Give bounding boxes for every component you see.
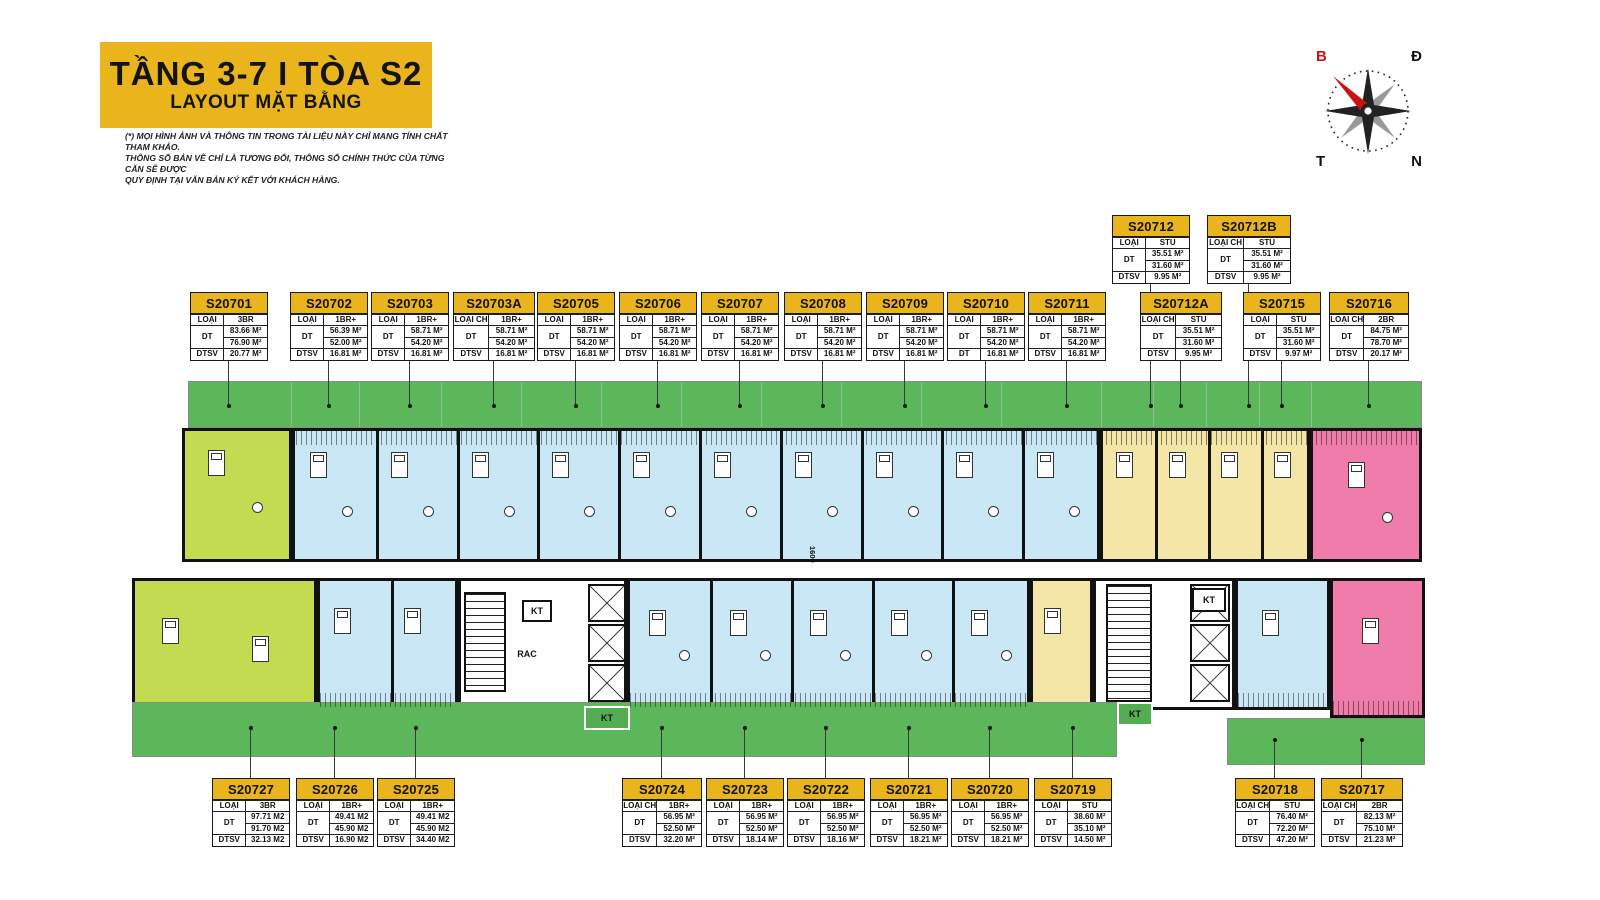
bed-icon xyxy=(795,452,812,478)
unit-card-S20715[interactable]: S20715 LOẠI CH STU DT 35.51 M² 31.60 M² … xyxy=(1243,292,1321,361)
field-label-dtsv: DTSV xyxy=(871,834,904,846)
unit-divider-wall xyxy=(699,431,702,559)
unit-area-net: 31.60 M² xyxy=(1277,337,1320,349)
unit-type: 1BR+ xyxy=(405,314,448,326)
field-label-dtsv: DTSV xyxy=(702,348,735,360)
unit-area-dtsv: 16.81 M² xyxy=(571,348,614,360)
unit-divider-wall xyxy=(681,382,682,427)
leader-dot xyxy=(327,404,331,408)
bed-icon xyxy=(714,452,731,478)
field-label-dt: DT xyxy=(538,325,571,348)
field-label-dt: DT xyxy=(867,325,900,348)
leader-dot xyxy=(1071,726,1075,730)
unit-divider-wall xyxy=(861,431,864,559)
unit-area-gross: 35.51 M² xyxy=(1176,325,1221,337)
unit-code: S20703A xyxy=(454,293,534,314)
unit-area-dtsv: 16.81 M² xyxy=(981,348,1024,360)
unit-info-table: LOẠI CH 1BR+ DT 56.95 M² 52.50 M² DTSV 1… xyxy=(952,800,1028,846)
elevator-icon xyxy=(588,664,626,702)
leader-line xyxy=(415,728,416,778)
floorplan-page: TẦNG 3-7 I TÒA S2 LAYOUT MẶT BẰNG (*) MỌ… xyxy=(0,0,1600,900)
field-label-loai-ch: LOẠI CH xyxy=(297,800,330,812)
leader-line xyxy=(409,360,410,406)
leader-dot xyxy=(1280,404,1284,408)
unit-area-dtsv: 47.20 M² xyxy=(1270,834,1314,846)
table-icon xyxy=(908,506,919,517)
leader-line xyxy=(908,728,909,778)
unit-block-1br-top xyxy=(292,428,1100,562)
unit-card-S20703A[interactable]: S20703A LOẠI CH 1BR+ DT 58.71 M² 54.20 M… xyxy=(453,292,535,361)
unit-area-gross: 58.71 M² xyxy=(1062,325,1105,337)
unit-area-net: 76.90 M² xyxy=(224,337,267,349)
unit-area-dtsv: 9.97 M² xyxy=(1277,348,1320,360)
unit-area-gross: 49.41 M2 xyxy=(330,811,373,823)
bed-icon xyxy=(252,636,269,662)
unit-type: 1BR+ xyxy=(1062,314,1105,326)
unit-card-S20712[interactable]: S20712 LOẠI CH STU DT 35.51 M² 31.60 M² … xyxy=(1112,215,1190,284)
landscape-strip-bottom-right xyxy=(1227,718,1425,765)
leader-line xyxy=(989,728,990,778)
unit-type: 1BR+ xyxy=(735,314,778,326)
unit-area-dtsv: 16.81 M² xyxy=(818,348,861,360)
unit-block-1br-bottom-left xyxy=(317,578,458,710)
unit-area-dtsv: 32.20 M² xyxy=(657,834,701,846)
unit-code: S20726 xyxy=(297,779,373,800)
staircase-icon xyxy=(464,592,506,692)
unit-area-dtsv: 16.81 M² xyxy=(1062,348,1105,360)
elevator-icon xyxy=(1190,664,1230,702)
unit-card-S20727[interactable]: S20727 LOẠI CH 3BR DT 97.71 M2 91.70 M2 … xyxy=(212,778,290,847)
unit-info-table: LOẠI CH 1BR+ DT 58.71 M² 54.20 M² DTSV 1… xyxy=(372,314,448,360)
unit-info-table: LOẠI CH 1BR+ DT 49.41 M2 45.90 M2 DTSV 3… xyxy=(378,800,454,846)
bed-icon xyxy=(1037,452,1054,478)
leader-dot xyxy=(907,726,911,730)
unit-divider-wall xyxy=(1206,382,1207,427)
unit-card-S20712B[interactable]: S20712B LOẠI CH STU DT 35.51 M² 31.60 M²… xyxy=(1207,215,1291,284)
unit-info-table: LOẠI CH 1BR+ DT 58.71 M² 54.20 M² DTSV 1… xyxy=(538,314,614,360)
unit-type: STU xyxy=(1068,800,1111,812)
leader-line xyxy=(744,728,745,778)
leader-line xyxy=(657,360,658,406)
field-label-loai-ch: LOẠI CH xyxy=(1330,314,1364,326)
unit-info-table: LOẠI CH STU DT 76.40 M² 72.20 M² DTSV 47… xyxy=(1236,800,1314,846)
bed-icon xyxy=(956,452,973,478)
leader-dot xyxy=(408,404,412,408)
unit-divider-wall xyxy=(872,581,875,707)
unit-card-S20720[interactable]: S20720 LOẠI CH 1BR+ DT 56.95 M² 52.50 M²… xyxy=(951,778,1029,847)
unit-info-table: LOẠI CH 2BR DT 84.75 M² 78.70 M² DTSV 20… xyxy=(1330,314,1408,360)
disclaimer-line: THÔNG SỐ BẢN VẼ CHỈ LÀ TƯƠNG ĐỐI, THÔNG … xyxy=(125,153,465,175)
table-icon xyxy=(342,506,353,517)
unit-block-stu-top xyxy=(1100,428,1310,562)
field-label-dtsv: DTSV xyxy=(454,348,489,360)
unit-area-net: 54.20 M² xyxy=(735,337,778,349)
field-label-dt: DT xyxy=(297,811,330,834)
field-label-loai-ch: LOẠI CH xyxy=(191,314,224,326)
bed-icon xyxy=(310,452,327,478)
table-icon xyxy=(252,502,263,513)
field-label-dt: DT xyxy=(707,811,740,834)
bed-icon xyxy=(404,608,421,634)
staircase-icon xyxy=(1106,584,1152,702)
field-label-dt: DT xyxy=(702,325,735,348)
unit-area-gross: 58.71 M² xyxy=(818,325,861,337)
unit-area-net: 31.60 M² xyxy=(1176,337,1221,349)
field-label-dt: DT xyxy=(1322,811,1357,834)
unit-card-S20723[interactable]: S20723 LOẠI CH 1BR+ DT 56.95 M² 52.50 M²… xyxy=(706,778,784,847)
unit-type: 1BR+ xyxy=(818,314,861,326)
table-icon xyxy=(1382,512,1393,523)
corridor-dimension-label: 1600 xyxy=(808,546,817,563)
field-label-dt: DT xyxy=(1113,248,1146,271)
unit-code: S20718 xyxy=(1236,779,1314,800)
field-label-loai-ch: LOẠI CH xyxy=(291,314,324,326)
unit-type: 1BR+ xyxy=(330,800,373,812)
unit-info-table: LOẠI CH STU DT 38.60 M² 35.10 M² DTSV 14… xyxy=(1035,800,1111,846)
unit-card-S20712A[interactable]: S20712A LOẠI CH STU DT 35.51 M² 31.60 M²… xyxy=(1140,292,1222,361)
disclaimer-text: (*) MỌI HÌNH ẢNH VÀ THÔNG TIN TRONG TÀI … xyxy=(125,131,465,186)
unit-divider-wall xyxy=(1153,382,1154,427)
field-label-dt: DT xyxy=(788,811,821,834)
field-label-dt: DT xyxy=(952,811,985,834)
unit-area-dtsv: 18.21 M² xyxy=(904,834,947,846)
unit-code: S20701 xyxy=(191,293,267,314)
compass-south-label: N xyxy=(1411,153,1422,170)
unit-card-S20708[interactable]: S20708 LOẠI CH 1BR+ DT 58.71 M² 54.20 M²… xyxy=(784,292,862,361)
field-label-loai-ch: LOẠI CH xyxy=(454,314,489,326)
field-label-loai-ch: LOẠI CH xyxy=(707,800,740,812)
field-label-dtsv: DTSV xyxy=(191,348,224,360)
leader-line xyxy=(825,728,826,778)
unit-type: 1BR+ xyxy=(324,314,367,326)
leader-line xyxy=(739,360,740,406)
leader-dot xyxy=(656,404,660,408)
unit-type: 1BR+ xyxy=(904,800,947,812)
kt-room-label-green: KT xyxy=(584,706,630,730)
leader-dot xyxy=(249,726,253,730)
unit-divider-wall xyxy=(761,382,762,427)
unit-area-gross: 58.71 M² xyxy=(571,325,614,337)
unit-divider-wall xyxy=(457,431,460,559)
leader-dot xyxy=(743,726,747,730)
bed-icon xyxy=(334,608,351,634)
field-label-dt: DT xyxy=(948,325,981,348)
unit-info-table: LOẠI CH 1BR+ DT 58.71 M² 54.20 M² DTSV 1… xyxy=(1029,314,1105,360)
unit-info-table: LOẠI CH 1BR+ DT 58.71 M² 54.20 M² DT 16.… xyxy=(948,314,1024,360)
field-label-dtsv: DTSV xyxy=(1208,271,1244,283)
unit-card-S20725[interactable]: S20725 LOẠI CH 1BR+ DT 49.41 M2 45.90 M2… xyxy=(377,778,455,847)
bed-icon xyxy=(730,610,747,636)
title-box: TẦNG 3-7 I TÒA S2 LAYOUT MẶT BẰNG xyxy=(100,42,432,128)
unit-area-gross: 56.95 M² xyxy=(740,811,783,823)
bed-icon xyxy=(1348,462,1365,488)
elevator-icon xyxy=(588,624,626,662)
field-label-loai-ch: LOẠI CH xyxy=(1322,800,1357,812)
unit-code: S20723 xyxy=(707,779,783,800)
field-label-dtsv: DTSV xyxy=(1244,348,1277,360)
compass-north-label: B xyxy=(1316,48,1327,65)
unit-card-S20701[interactable]: S20701 LOẠI CH 3BR DT 83.66 M² 76.90 M² … xyxy=(190,292,268,361)
field-label-loai-ch: LOẠI CH xyxy=(378,800,411,812)
field-label-dt: DT xyxy=(1029,325,1062,348)
leader-dot xyxy=(824,726,828,730)
unit-divider-wall xyxy=(359,382,360,427)
unit-card-S20711[interactable]: S20711 LOẠI CH 1BR+ DT 58.71 M² 54.20 M²… xyxy=(1028,292,1106,361)
unit-code: S20720 xyxy=(952,779,1028,800)
field-label-dt: DT xyxy=(1330,325,1364,348)
leader-line xyxy=(1274,740,1275,778)
unit-code: S20707 xyxy=(702,293,778,314)
table-icon xyxy=(760,650,771,661)
unit-type: STU xyxy=(1277,314,1320,326)
disclaimer-line: (*) MỌI HÌNH ẢNH VÀ THÔNG TIN TRONG TÀI … xyxy=(125,131,465,153)
unit-area-dtsv: 9.95 M² xyxy=(1176,348,1221,360)
unit-code: S20712 xyxy=(1113,216,1189,237)
table-icon xyxy=(921,650,932,661)
unit-card-S20703[interactable]: S20703 LOẠI CH 1BR+ DT 58.71 M² 54.20 M²… xyxy=(371,292,449,361)
unit-card-S20722[interactable]: S20722 LOẠI CH 1BR+ DT 56.95 M² 52.50 M²… xyxy=(787,778,865,847)
leader-dot xyxy=(1273,738,1277,742)
unit-area-net: 54.20 M² xyxy=(818,337,861,349)
unit-type: 1BR+ xyxy=(653,314,696,326)
unit-card-S20710[interactable]: S20710 LOẠI CH 1BR+ DT 58.71 M² 54.20 M²… xyxy=(947,292,1025,361)
unit-area-gross: 58.71 M² xyxy=(900,325,943,337)
unit-area-gross: 58.71 M² xyxy=(653,325,696,337)
unit-card-S20726[interactable]: S20726 LOẠI CH 1BR+ DT 49.41 M2 45.90 M2… xyxy=(296,778,374,847)
bed-icon xyxy=(891,610,908,636)
unit-area-dtsv: 9.95 M² xyxy=(1244,271,1290,283)
unit-area-net: 78.70 M² xyxy=(1364,337,1408,349)
bed-icon xyxy=(1274,452,1291,478)
unit-type: 1BR+ xyxy=(981,314,1024,326)
unit-area-net: 54.20 M² xyxy=(1062,337,1105,349)
unit-card-S20702[interactable]: S20702 LOẠI CH 1BR+ DT 56.39 M² 52.00 M²… xyxy=(290,292,368,361)
unit-area-gross: 49.41 M2 xyxy=(411,811,454,823)
leader-line xyxy=(1180,360,1181,406)
unit-area-dtsv: 16.81 M² xyxy=(735,348,778,360)
unit-area-dtsv: 34.40 M2 xyxy=(411,834,454,846)
unit-area-net: 91.70 M2 xyxy=(246,823,289,835)
field-label-dtsv: DTSV xyxy=(378,834,411,846)
unit-card-S20716[interactable]: S20716 LOẠI CH 2BR DT 84.75 M² 78.70 M² … xyxy=(1329,292,1409,361)
unit-code: S20706 xyxy=(620,293,696,314)
unit-type: 1BR+ xyxy=(900,314,943,326)
unit-divider-wall xyxy=(941,431,944,559)
leader-dot xyxy=(660,726,664,730)
unit-card-S20707[interactable]: S20707 LOẠI CH 1BR+ DT 58.71 M² 54.20 M²… xyxy=(701,292,779,361)
leader-dot xyxy=(821,404,825,408)
unit-card-S20717[interactable]: S20717 LOẠI CH 2BR DT 82.13 M² 75.10 M² … xyxy=(1321,778,1403,847)
bed-icon xyxy=(162,618,179,644)
unit-divider-wall xyxy=(601,382,602,427)
field-label-dtsv: DTSV xyxy=(1322,834,1357,846)
unit-block-stu-bottom xyxy=(1030,578,1093,710)
unit-area-gross: 56.95 M² xyxy=(904,811,947,823)
leader-line xyxy=(1066,360,1067,406)
leader-line xyxy=(493,360,494,406)
field-label-dt: DT xyxy=(191,325,224,348)
unit-divider-wall xyxy=(1101,382,1102,427)
unit-area-gross: 35.51 M² xyxy=(1244,248,1290,260)
table-icon xyxy=(504,506,515,517)
balcony-hatch xyxy=(296,431,1418,445)
bed-icon xyxy=(1221,452,1238,478)
field-label-loai-ch: LOẠI CH xyxy=(1113,237,1146,249)
leader-dot xyxy=(1360,738,1364,742)
table-icon xyxy=(746,506,757,517)
disclaimer-line: QUY ĐỊNH TẠI VĂN BẢN KÝ KẾT VỚI KHÁCH HÀ… xyxy=(125,175,465,186)
bed-icon xyxy=(1044,608,1061,634)
bed-icon xyxy=(633,452,650,478)
unit-area-gross: 35.51 M² xyxy=(1277,325,1320,337)
unit-area-dtsv: 20.17 M² xyxy=(1364,348,1408,360)
unit-type: STU xyxy=(1146,237,1189,249)
leader-dot xyxy=(1179,404,1183,408)
unit-area-gross: 58.71 M² xyxy=(405,325,448,337)
unit-area-gross: 84.75 M² xyxy=(1364,325,1408,337)
field-label-loai-ch: LOẠI CH xyxy=(952,800,985,812)
field-label-dtsv: DTSV xyxy=(291,348,324,360)
leader-line xyxy=(661,728,662,778)
leader-line xyxy=(328,360,329,406)
leader-dot xyxy=(333,726,337,730)
unit-area-gross: 35.51 M² xyxy=(1146,248,1189,260)
leader-line xyxy=(250,728,251,778)
unit-divider-wall xyxy=(1155,431,1158,559)
field-label-dtsv: DTSV xyxy=(707,834,740,846)
unit-area-net: 54.20 M² xyxy=(571,337,614,349)
unit-divider-wall xyxy=(841,382,842,427)
field-label-dtsv: DT xyxy=(948,348,981,360)
unit-block-3br-bottom xyxy=(132,578,317,710)
leader-dot xyxy=(227,404,231,408)
unit-code: S20705 xyxy=(538,293,614,314)
unit-code: S20712B xyxy=(1208,216,1290,237)
field-label-dt: DT xyxy=(291,325,324,348)
field-label-dt: DT xyxy=(454,325,489,348)
field-label-dt: DT xyxy=(623,811,657,834)
unit-divider-wall xyxy=(537,431,540,559)
field-label-loai-ch: LOẠI CH xyxy=(948,314,981,326)
unit-divider-wall xyxy=(1022,431,1025,559)
unit-divider-wall xyxy=(1259,382,1260,427)
unit-card-S20705[interactable]: S20705 LOẠI CH 1BR+ DT 58.71 M² 54.20 M²… xyxy=(537,292,615,361)
unit-area-gross: 58.71 M² xyxy=(489,325,534,337)
unit-code: S20712A xyxy=(1141,293,1221,314)
unit-code: S20724 xyxy=(623,779,701,800)
leader-dot xyxy=(1247,404,1251,408)
field-label-dtsv: DTSV xyxy=(1113,271,1146,283)
unit-area-dtsv: 18.16 M² xyxy=(821,834,864,846)
unit-divider-wall xyxy=(1001,382,1002,427)
unit-area-dtsv: 14.50 M² xyxy=(1068,834,1111,846)
unit-info-table: LOẠI CH 1BR+ DT 58.71 M² 54.20 M² DTSV 1… xyxy=(867,314,943,360)
leader-line xyxy=(1072,728,1073,778)
rac-room-label: RAC xyxy=(498,644,556,664)
field-label-dt: DT xyxy=(620,325,653,348)
field-label-dtsv: DTSV xyxy=(788,834,821,846)
compass: B Đ T N xyxy=(1312,52,1424,168)
unit-divider-wall xyxy=(921,382,922,427)
page-subtitle: LAYOUT MẶT BẰNG xyxy=(170,92,362,114)
leader-dot xyxy=(988,726,992,730)
unit-area-gross: 76.40 M² xyxy=(1270,811,1314,823)
compass-west-label: T xyxy=(1316,153,1325,170)
unit-card-S20706[interactable]: S20706 LOẠI CH 1BR+ DT 58.71 M² 54.20 M²… xyxy=(619,292,697,361)
unit-type: 1BR+ xyxy=(411,800,454,812)
field-label-dtsv: DTSV xyxy=(297,834,330,846)
unit-area-net: 52.50 M² xyxy=(904,823,947,835)
unit-code: S20708 xyxy=(785,293,861,314)
bed-icon xyxy=(1169,452,1186,478)
unit-info-table: LOẠI CH 1BR+ DT 56.95 M² 52.50 M² DTSV 1… xyxy=(707,800,783,846)
field-label-dtsv: DTSV xyxy=(372,348,405,360)
unit-type: 1BR+ xyxy=(571,314,614,326)
unit-info-table: LOẠI CH 3BR DT 83.66 M² 76.90 M² DTSV 20… xyxy=(191,314,267,360)
field-label-dt: DT xyxy=(1244,325,1277,348)
unit-area-dtsv: 20.77 M² xyxy=(224,348,267,360)
unit-type: 1BR+ xyxy=(740,800,783,812)
unit-type: STU xyxy=(1244,237,1290,249)
field-label-dt: DT xyxy=(372,325,405,348)
unit-card-S20709[interactable]: S20709 LOẠI CH 1BR+ DT 58.71 M² 54.20 M²… xyxy=(866,292,944,361)
unit-area-dtsv: 16.81 M² xyxy=(653,348,696,360)
leader-line xyxy=(1281,360,1282,406)
field-label-dt: DT xyxy=(1236,811,1270,834)
leader-dot xyxy=(414,726,418,730)
balcony-hatch xyxy=(1333,701,1422,715)
unit-area-net: 52.50 M² xyxy=(657,823,701,835)
unit-card-S20721[interactable]: S20721 LOẠI CH 1BR+ DT 56.95 M² 52.50 M²… xyxy=(870,778,948,847)
unit-info-table: LOẠI CH 1BR+ DT 56.95 M² 52.50 M² DTSV 1… xyxy=(871,800,947,846)
table-icon xyxy=(827,506,838,517)
unit-info-table: LOẠI CH 1BR+ DT 58.71 M² 54.20 M² DTSV 1… xyxy=(454,314,534,360)
unit-info-table: LOẠI CH 1BR+ DT 56.39 M² 52.00 M² DTSV 1… xyxy=(291,314,367,360)
unit-code: S20711 xyxy=(1029,293,1105,314)
unit-card-S20719[interactable]: S20719 LOẠI CH STU DT 38.60 M² 35.10 M² … xyxy=(1034,778,1112,847)
unit-info-table: LOẠI CH 3BR DT 97.71 M2 91.70 M2 DTSV 32… xyxy=(213,800,289,846)
unit-block-2br-top xyxy=(1310,428,1422,562)
bed-icon xyxy=(552,452,569,478)
unit-card-S20718[interactable]: S20718 LOẠI CH STU DT 76.40 M² 72.20 M² … xyxy=(1235,778,1315,847)
unit-block-1br-bottom-mid xyxy=(627,578,1030,710)
unit-block-2br-bottom xyxy=(1330,578,1425,718)
unit-type: 3BR xyxy=(246,800,289,812)
field-label-dt: DT xyxy=(785,325,818,348)
field-label-dtsv: DTSV xyxy=(620,348,653,360)
unit-card-S20724[interactable]: S20724 LOẠI CH 1BR+ DT 56.95 M² 52.50 M²… xyxy=(622,778,702,847)
bed-icon xyxy=(1262,610,1279,636)
unit-area-net: 54.20 M² xyxy=(405,337,448,349)
unit-area-gross: 56.95 M² xyxy=(821,811,864,823)
unit-code: S20719 xyxy=(1035,779,1111,800)
balcony-hatch xyxy=(630,693,1027,707)
unit-area-dtsv: 32.13 M2 xyxy=(246,834,289,846)
unit-block-3br-top xyxy=(182,428,292,562)
leader-line xyxy=(1368,360,1369,406)
unit-area-net: 54.20 M² xyxy=(900,337,943,349)
kt-room-label-green: KT xyxy=(1117,702,1153,726)
unit-code: S20702 xyxy=(291,293,367,314)
unit-area-gross: 56.95 M² xyxy=(657,811,701,823)
field-label-loai-ch: LOẠI CH xyxy=(1236,800,1270,812)
unit-area-gross: 83.66 M² xyxy=(224,325,267,337)
field-label-loai-ch: LOẠI CH xyxy=(538,314,571,326)
unit-type: 1BR+ xyxy=(489,314,534,326)
leader-line xyxy=(334,728,335,778)
unit-area-dtsv: 18.14 M² xyxy=(740,834,783,846)
leader-line xyxy=(1361,740,1362,778)
